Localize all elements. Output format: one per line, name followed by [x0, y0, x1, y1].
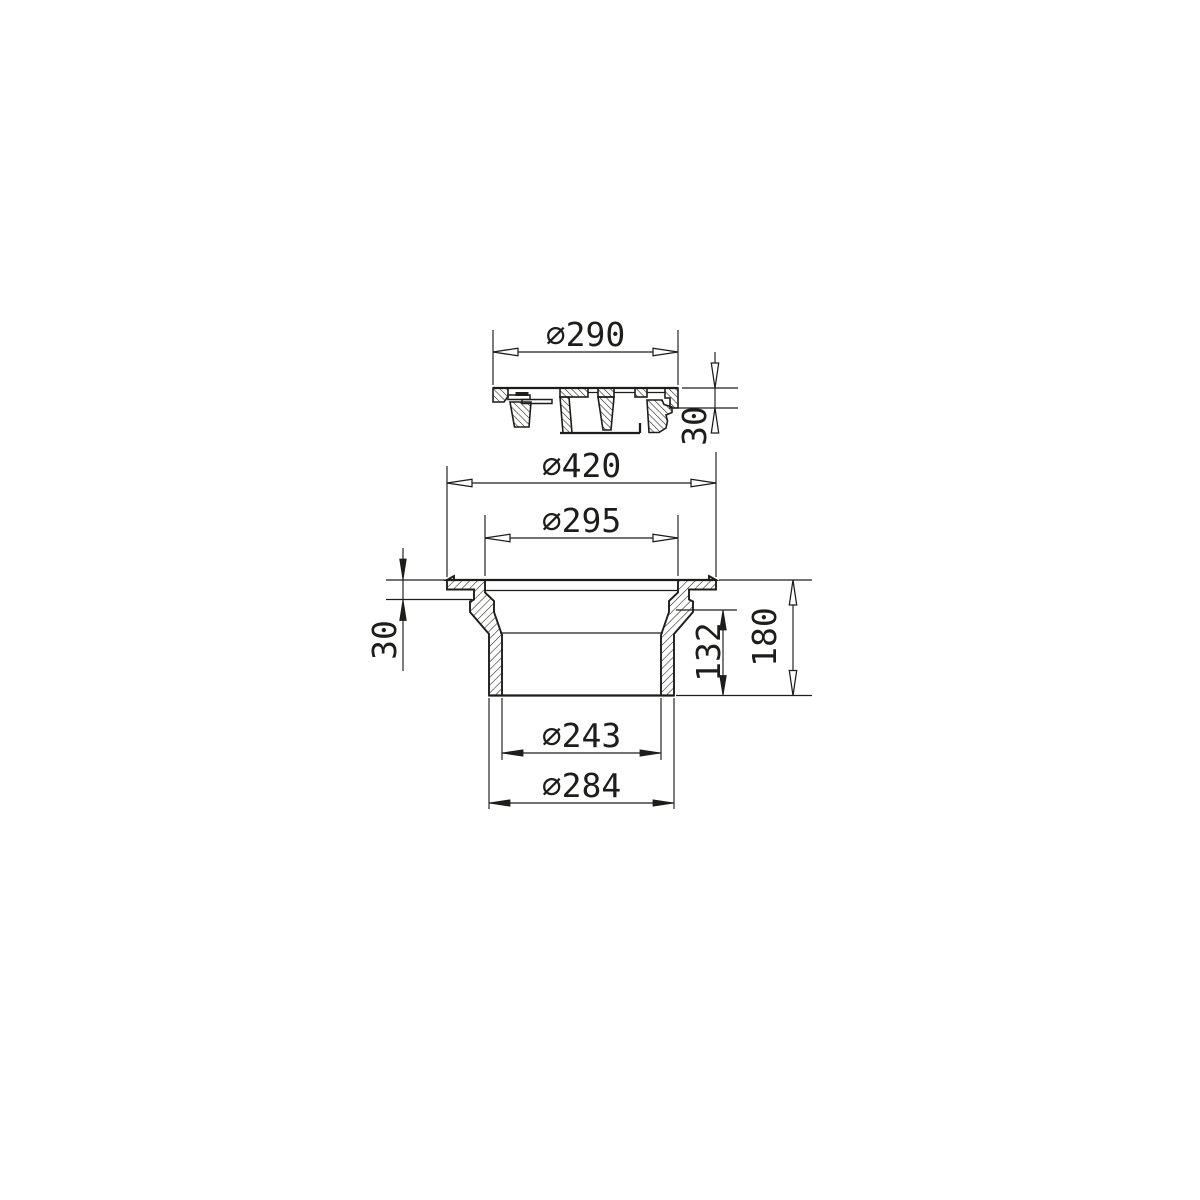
dimension-label: 132 — [689, 622, 728, 682]
dimension-label: ∅284 — [542, 766, 621, 805]
dimension-label: 30 — [675, 406, 714, 446]
cover-plate-segment — [560, 388, 588, 397]
cover-left-edge-block — [493, 388, 508, 402]
cover-rib-wall — [560, 397, 572, 433]
cover-web-tab — [516, 393, 528, 396]
cover-plate-segment — [635, 388, 647, 397]
dimension-label: ∅420 — [542, 446, 621, 485]
dimension-label: ∅243 — [542, 716, 621, 755]
cover-plate-segment — [598, 388, 614, 397]
dimension-label: 30 — [365, 620, 404, 660]
drawing-sheet: ∅290 30 ∅420 ∅295 30 132 — [0, 0, 1200, 1200]
technical-drawing-canvas: ∅290 30 ∅420 ∅295 30 132 — [0, 0, 1200, 1200]
dimension-label: ∅290 — [546, 315, 625, 354]
sheet-background — [0, 0, 1200, 1200]
cover-rib-left — [510, 402, 531, 427]
dimension-label: 180 — [745, 607, 784, 667]
dimension-label: ∅295 — [542, 501, 621, 540]
